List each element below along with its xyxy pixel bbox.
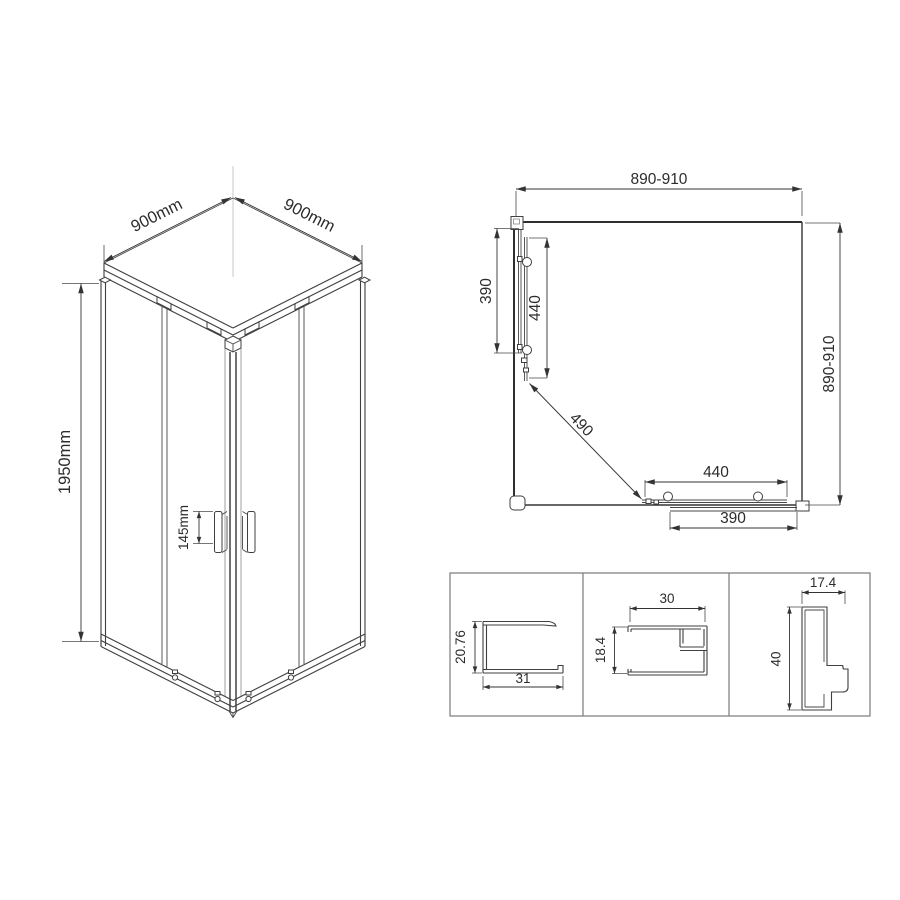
- dim-profile3-height-label: 40: [769, 651, 784, 666]
- dim-left-door-label: 440: [527, 295, 544, 321]
- isometric-view: 900mm 900mm: [56, 166, 370, 718]
- profile-vertical-post: 17.4 40: [769, 575, 849, 710]
- profile-top-rail: 30 18.4: [593, 591, 707, 675]
- dim-left-panel-label: 390: [478, 278, 495, 304]
- profile-details: 20.76 31 30 18.4 17.4 40: [450, 573, 870, 716]
- dim-profile1-height-label: 20.76: [453, 630, 468, 664]
- dim-profile1-width-label: 31: [515, 671, 530, 686]
- dim-bottom-panel-label: 390: [720, 510, 746, 527]
- dim-plan-top-label: 890-910: [631, 171, 688, 188]
- dim-width-left-label: 900mm: [128, 195, 185, 236]
- corner-post-bottom-right: [796, 501, 809, 511]
- profile-bottom-rail: 20.76 31: [453, 622, 563, 691]
- dim-line-diagonal: [530, 384, 642, 500]
- plan-view: 890-910 890-910 390 440 490 440 390: [478, 171, 840, 530]
- dim-profile3-width-label: 17.4: [810, 575, 837, 590]
- door-handle-right: [243, 512, 256, 553]
- corner-post-bottom-left: [510, 496, 525, 510]
- dim-profile2-height-label: 18.4: [593, 636, 608, 663]
- technical-drawing: 900mm 900mm: [0, 0, 900, 900]
- dim-diagonal-label: 490: [566, 410, 597, 441]
- dim-profile2-width-label: 30: [659, 591, 674, 606]
- corner-post-top-left: [511, 217, 523, 230]
- dim-plan-right-label: 890-910: [821, 335, 838, 392]
- dim-bottom-door-label: 440: [703, 464, 729, 481]
- dim-height-label: 1950mm: [56, 430, 74, 494]
- dim-handle-label: 145mm: [176, 505, 191, 550]
- dim-width-right-label: 900mm: [281, 195, 338, 236]
- drawing-svg: 900mm 900mm: [0, 0, 900, 900]
